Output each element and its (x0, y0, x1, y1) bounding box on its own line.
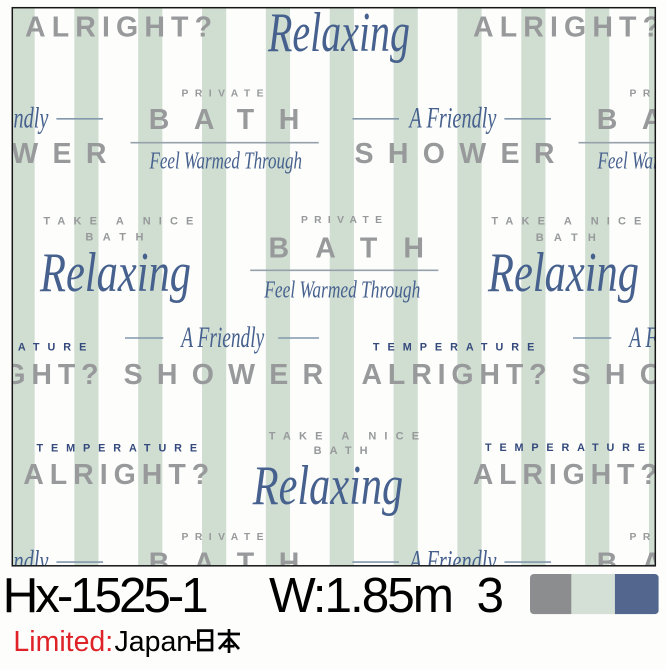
svg-text:ALRIGHT?: ALRIGHT? (473, 459, 658, 491)
svg-text:3: 3 (477, 568, 505, 623)
svg-text:A Friendly: A Friendly (408, 101, 497, 134)
svg-text:Limited:: Limited: (13, 626, 113, 658)
svg-text:Hx-1525-1: Hx-1525-1 (3, 568, 209, 623)
svg-text:ALRIGHT?: ALRIGHT? (25, 12, 212, 44)
svg-text:ALRIGHT?: ALRIGHT? (23, 459, 209, 491)
svg-text:ALRIGHT?: ALRIGHT? (473, 12, 660, 44)
svg-text:Feel Warmed Through: Feel Warmed Through (149, 149, 302, 175)
svg-text:Japan: Japan (115, 626, 193, 658)
svg-text:Feel Warmed Through: Feel Warmed Through (264, 278, 421, 304)
svg-text:A Friendly: A Friendly (180, 321, 265, 354)
svg-text:Relaxing: Relaxing (487, 242, 639, 304)
svg-text:SHOWER: SHOWER (0, 138, 107, 170)
svg-text:Relaxing: Relaxing (39, 242, 191, 304)
svg-text:ALRIGHT?: ALRIGHT? (362, 359, 547, 391)
svg-text:Relaxing: Relaxing (267, 2, 410, 64)
svg-text:SHOWER: SHOWER (572, 359, 666, 391)
svg-text:ALRIGHT?: ALRIGHT? (0, 359, 99, 391)
svg-text:Relaxing: Relaxing (252, 455, 403, 517)
svg-text:W:1.85m: W:1.85m (269, 568, 454, 623)
